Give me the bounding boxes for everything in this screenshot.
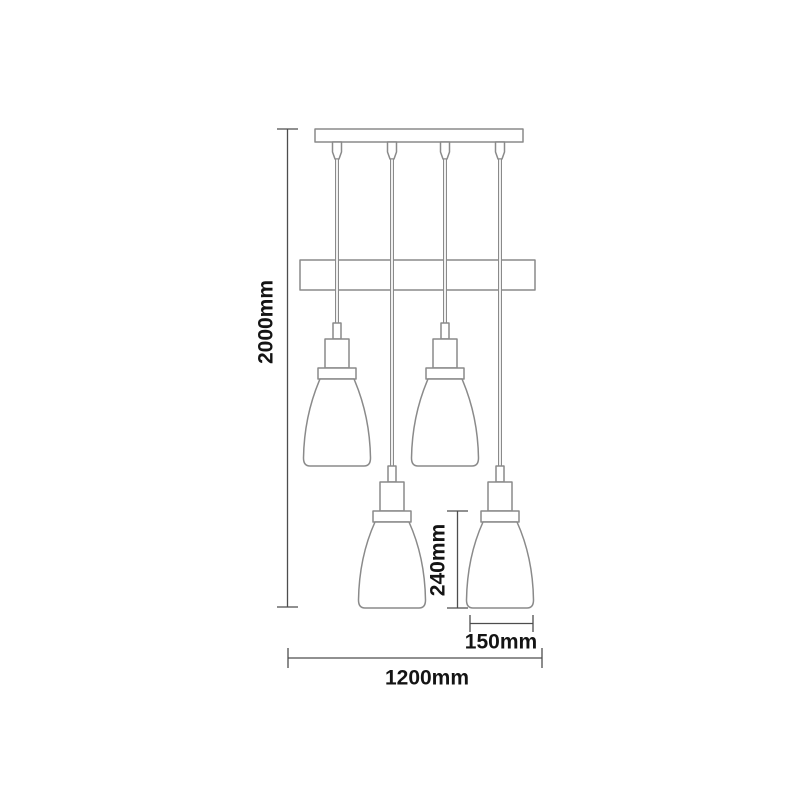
shade-width-dimension-line <box>470 615 533 632</box>
pendant-lamp-1 <box>304 323 371 466</box>
lamp-ferrule <box>441 323 449 339</box>
shade-height-dimension-line <box>447 511 468 608</box>
height-dimension-label: 2000mm <box>255 280 278 364</box>
cord-grip-1 <box>333 142 342 159</box>
suspension-cord-3 <box>444 159 447 324</box>
lamp-ferrule <box>388 466 396 482</box>
shade-rim <box>426 368 464 379</box>
cord-grip-2 <box>388 142 397 159</box>
shade-rim <box>481 511 519 522</box>
lamp-socket <box>380 482 404 511</box>
cord-grip-4 <box>496 142 505 159</box>
shade-width-dimension-label: 150mm <box>465 631 537 654</box>
width-dimension-label: 1200mm <box>385 667 469 690</box>
cord-grip-3 <box>441 142 450 159</box>
suspension-cord-4 <box>499 159 502 467</box>
suspension-cord-1 <box>336 159 339 324</box>
pendant-lamp-3 <box>412 323 479 466</box>
lamp-ferrule <box>333 323 341 339</box>
height-dimension-line <box>277 129 298 607</box>
lamp-shade <box>467 522 534 608</box>
shade-rim <box>373 511 411 522</box>
diagram-canvas: 2000mm 240mm 150mm 1200mm <box>0 0 800 800</box>
pendant-lamp-4 <box>467 466 534 608</box>
shade-rim <box>318 368 356 379</box>
lamp-shade <box>304 379 371 466</box>
lamp-shade <box>359 522 426 608</box>
lamp-ferrule <box>496 466 504 482</box>
lamp-shade <box>412 379 479 466</box>
lamp-socket <box>325 339 349 368</box>
pendant-lamp-2 <box>359 466 426 608</box>
lamp-socket <box>488 482 512 511</box>
ceiling-mount-plate <box>315 129 523 142</box>
lamp-socket <box>433 339 457 368</box>
shade-height-dimension-label: 240mm <box>427 524 450 596</box>
suspension-cord-2 <box>391 159 394 467</box>
pendant-light-diagram: 2000mm 240mm 150mm 1200mm <box>0 0 800 800</box>
cord-grips <box>333 142 505 159</box>
